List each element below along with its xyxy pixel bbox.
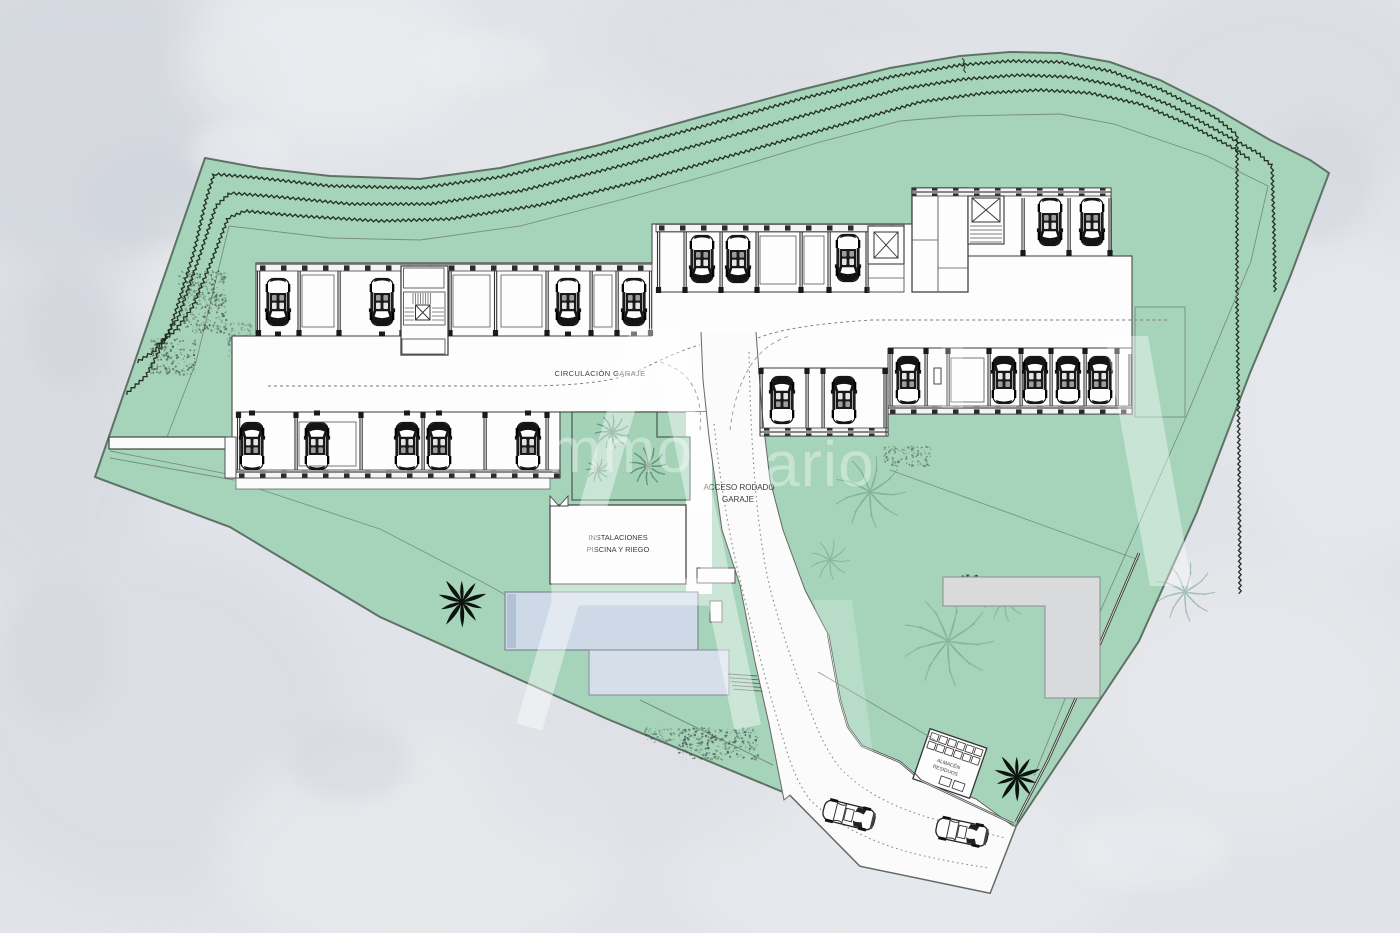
svg-text:GARAJE: GARAJE bbox=[722, 495, 754, 504]
svg-text:PISCINA Y RIEGO: PISCINA Y RIEGO bbox=[587, 545, 650, 554]
svg-text:ario: ario bbox=[764, 428, 875, 500]
